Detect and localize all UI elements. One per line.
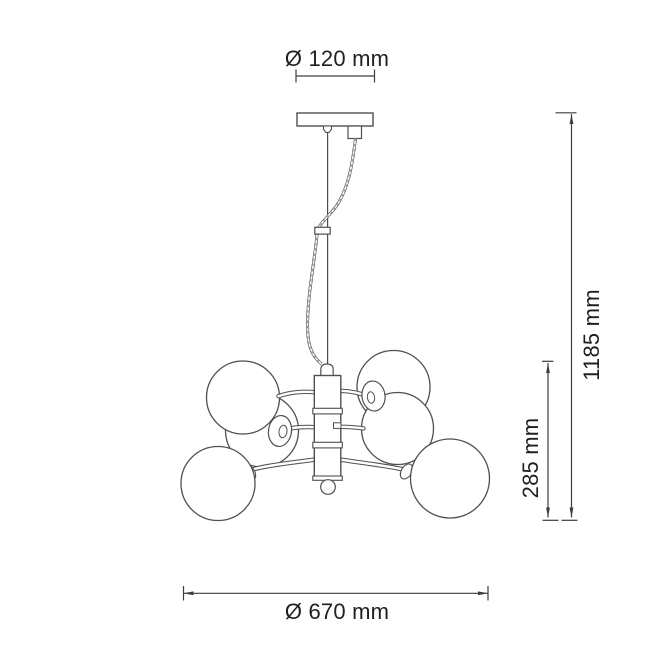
dimension-canopy-diameter — [296, 70, 375, 83]
ceiling-canopy — [297, 113, 373, 139]
column-band-upper — [313, 408, 343, 414]
globe-top-left — [207, 361, 280, 434]
label-overall-height: 1185 mm — [581, 289, 603, 380]
column-band-lower — [313, 442, 343, 448]
power-cable — [308, 139, 356, 365]
central-column — [313, 364, 343, 494]
arm-middle-right — [341, 427, 364, 429]
globe-bottom-left — [181, 447, 255, 521]
label-canopy-diameter: Ø 120 mm — [285, 48, 389, 70]
column-top-knob — [321, 364, 333, 376]
label-body-height: 285 mm — [520, 418, 542, 499]
globe-bottom-right — [411, 439, 490, 518]
column-set-screw — [334, 423, 342, 429]
arm-top-left — [279, 392, 315, 396]
lamp-line-drawing — [0, 0, 668, 668]
wire-attachment-knob — [324, 126, 332, 132]
dimension-overall-height — [556, 113, 578, 521]
diagram-canvas: Ø 120 mm Ø 670 mm 1185 mm 285 mm — [0, 0, 668, 668]
cable-gland-box — [348, 126, 362, 139]
label-fixture-diameter: Ø 670 mm — [285, 601, 389, 623]
column-bottom-ball — [321, 480, 336, 495]
dimension-body-height — [542, 361, 559, 520]
cable-clamp — [315, 227, 330, 234]
